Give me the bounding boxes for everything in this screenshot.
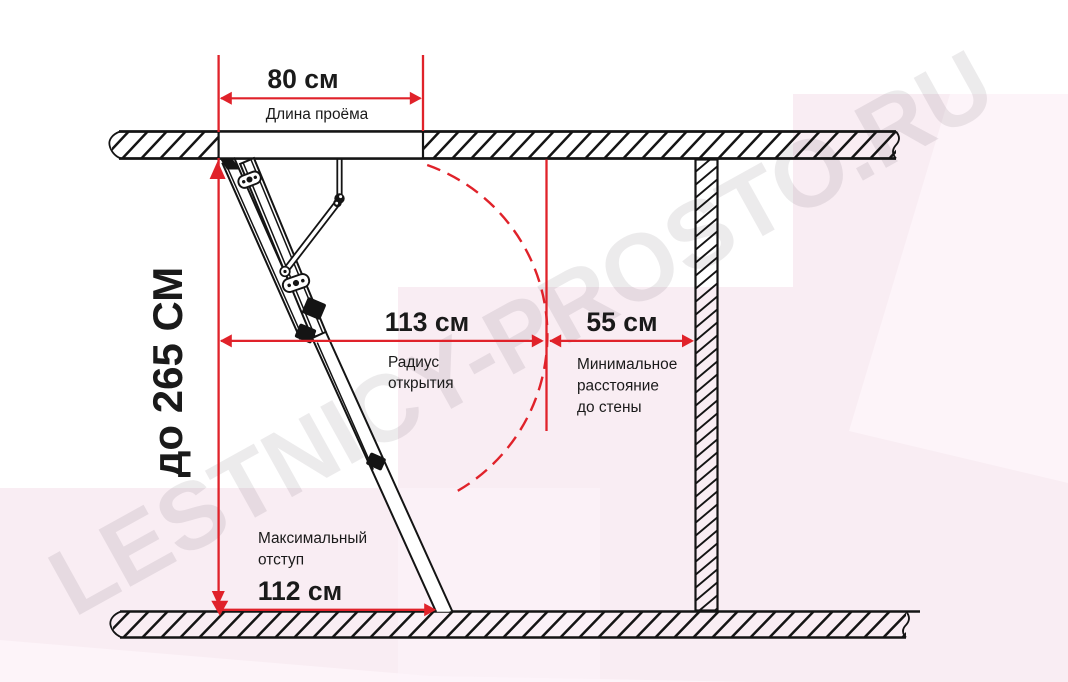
svg-text:Максимальный: Максимальный (258, 530, 367, 547)
svg-text:открытия: открытия (388, 375, 454, 392)
svg-text:113 см: 113 см (385, 307, 469, 337)
svg-text:Минимальное: Минимальное (577, 356, 677, 373)
svg-text:отступ: отступ (258, 552, 304, 569)
svg-text:80 см: 80 см (267, 64, 338, 94)
svg-text:расстояние: расстояние (577, 378, 659, 395)
svg-text:Длина проёма: Длина проёма (266, 106, 369, 123)
svg-text:Радиус: Радиус (388, 354, 439, 371)
svg-text:до стены: до стены (577, 399, 642, 416)
svg-text:55 см: 55 см (586, 307, 657, 337)
svg-text:112 см: 112 см (258, 576, 342, 606)
svg-text:до 265 СМ: до 265 СМ (144, 267, 191, 478)
